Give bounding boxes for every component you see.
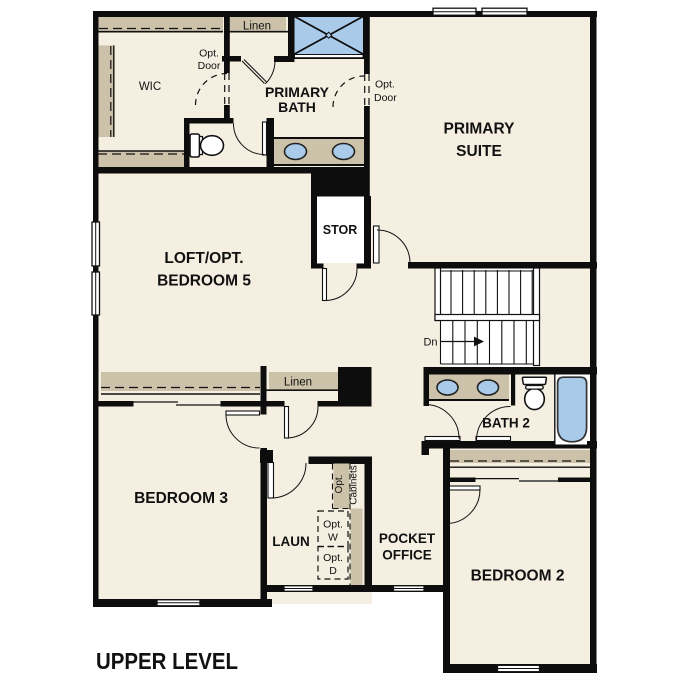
svg-text:Linen: Linen <box>243 21 271 33</box>
svg-text:Opt.: Opt. <box>323 552 343 564</box>
svg-text:W: W <box>328 532 338 544</box>
svg-text:D: D <box>329 565 337 577</box>
svg-text:PRIMARY: PRIMARY <box>444 121 516 138</box>
svg-text:BEDROOM 5: BEDROOM 5 <box>157 273 251 290</box>
svg-text:BATH 2: BATH 2 <box>482 416 530 431</box>
svg-text:LOFT/OPT.: LOFT/OPT. <box>164 250 243 267</box>
svg-text:UPPER LEVEL: UPPER LEVEL <box>96 648 238 674</box>
svg-text:LAUN: LAUN <box>272 534 310 549</box>
svg-text:BEDROOM 3: BEDROOM 3 <box>134 490 228 507</box>
svg-text:WIC: WIC <box>139 81 161 93</box>
svg-text:POCKET: POCKET <box>379 531 436 546</box>
svg-text:Dn: Dn <box>423 336 437 348</box>
svg-text:Door: Door <box>198 60 221 72</box>
svg-text:BATH: BATH <box>278 99 316 115</box>
svg-text:Opt.: Opt. <box>323 519 343 531</box>
svg-text:PRIMARY: PRIMARY <box>265 84 330 100</box>
svg-text:Opt.: Opt. <box>199 48 219 60</box>
svg-text:Linen: Linen <box>284 377 312 389</box>
svg-text:BEDROOM 2: BEDROOM 2 <box>471 568 565 585</box>
svg-text:Opt.: Opt. <box>375 79 395 91</box>
svg-text:STOR: STOR <box>323 223 358 237</box>
svg-text:Opt.: Opt. <box>334 475 345 494</box>
svg-text:OFFICE: OFFICE <box>382 548 432 563</box>
svg-text:Door: Door <box>374 92 397 104</box>
svg-text:SUITE: SUITE <box>456 143 502 160</box>
